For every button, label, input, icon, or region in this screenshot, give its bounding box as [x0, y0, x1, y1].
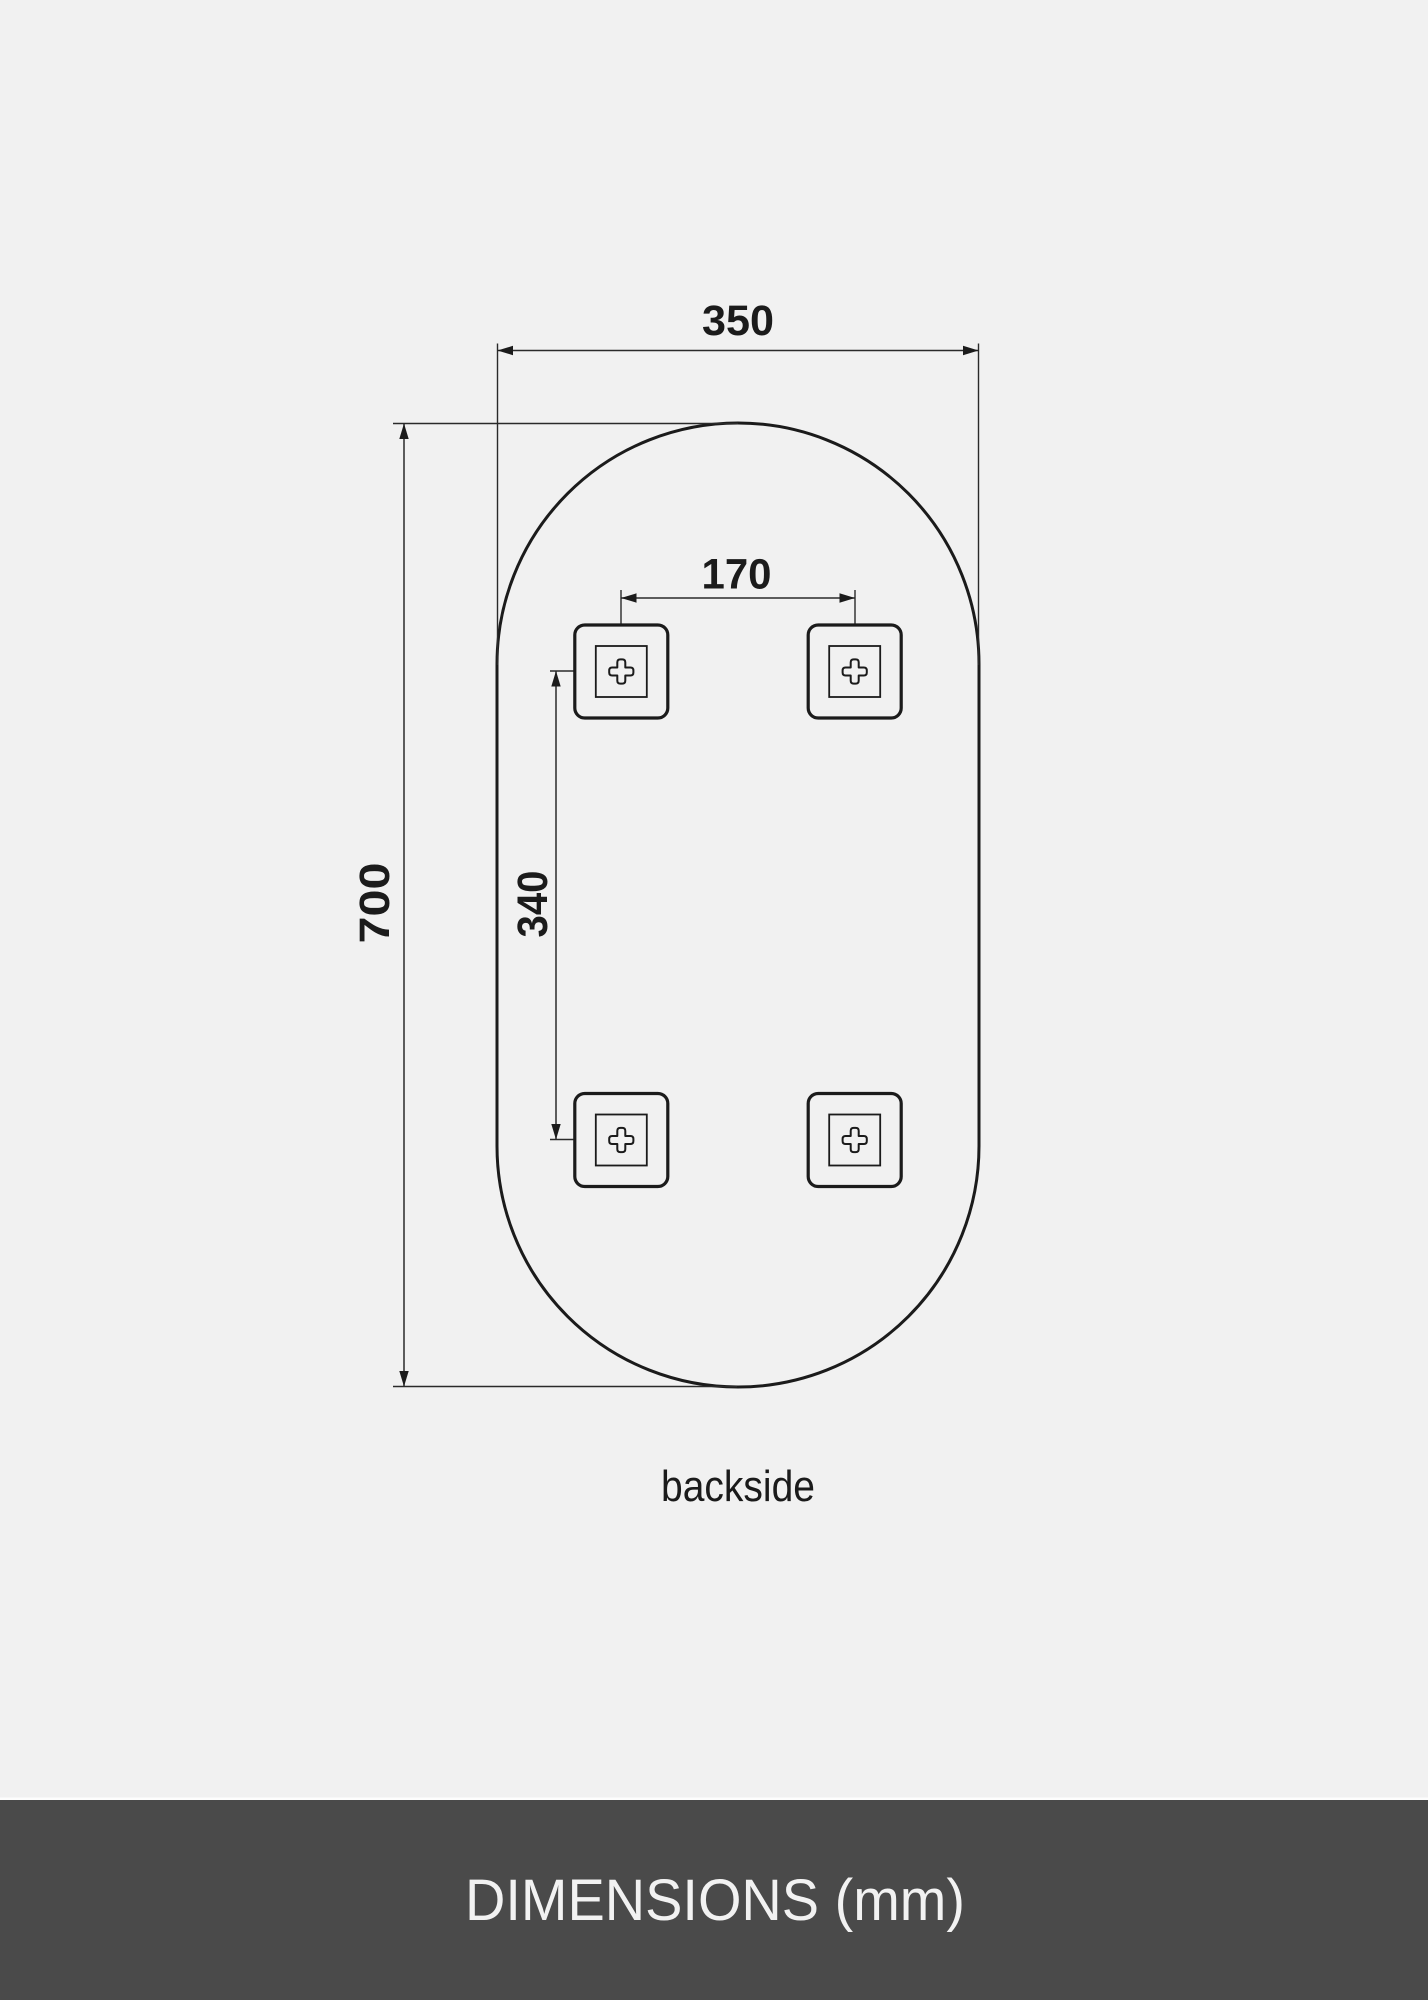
svg-text:340: 340 — [509, 871, 557, 938]
svg-text:DIMENSIONS (mm): DIMENSIONS (mm) — [465, 1868, 965, 1933]
svg-text:170: 170 — [702, 551, 772, 599]
svg-text:700: 700 — [351, 863, 399, 944]
svg-text:backside: backside — [661, 1462, 815, 1511]
svg-text:350: 350 — [702, 297, 774, 345]
